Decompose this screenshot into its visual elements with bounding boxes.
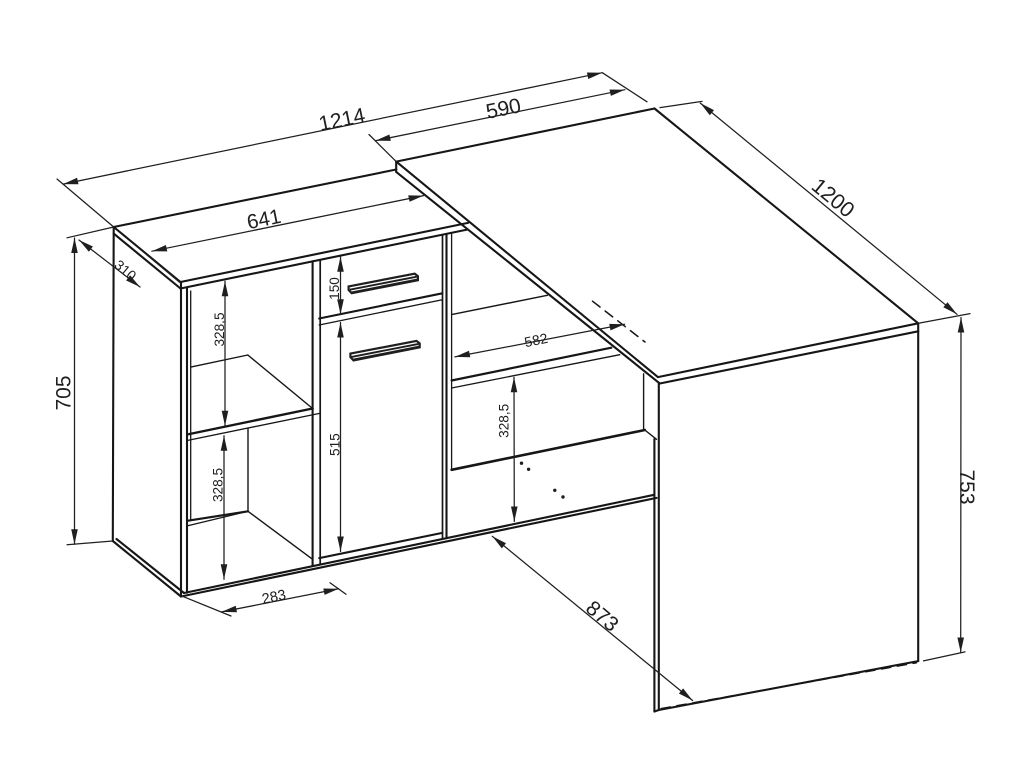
svg-text:753: 753 (955, 469, 978, 504)
svg-text:705: 705 (53, 375, 76, 410)
svg-text:515: 515 (327, 433, 342, 456)
svg-text:150: 150 (327, 277, 342, 300)
svg-text:328,5: 328,5 (210, 468, 225, 502)
svg-text:328,5: 328,5 (212, 312, 227, 346)
svg-text:328,5: 328,5 (497, 404, 512, 438)
